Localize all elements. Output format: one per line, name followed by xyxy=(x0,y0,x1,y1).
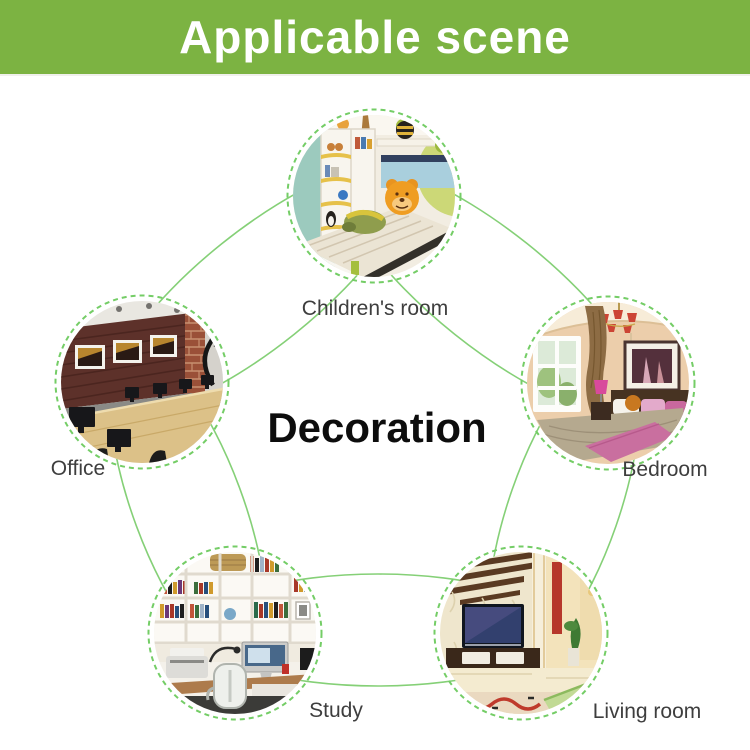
turtle-plush xyxy=(342,210,386,234)
tv xyxy=(462,604,524,648)
node-study xyxy=(147,545,323,721)
bedroom-photo-illustration xyxy=(527,302,689,464)
study-photo-illustration xyxy=(154,552,316,714)
printer xyxy=(166,648,208,678)
red-cup xyxy=(282,664,289,674)
label-living-room: Living room xyxy=(593,700,702,724)
center-title: Decoration xyxy=(267,404,486,452)
tv-console xyxy=(446,648,540,668)
bear-plush xyxy=(385,179,419,215)
label-bedroom: Bedroom xyxy=(622,458,707,482)
label-study: Study xyxy=(309,699,363,723)
label-office: Office xyxy=(51,457,105,481)
childrens-room-photo-illustration xyxy=(293,115,455,277)
node-living-room xyxy=(433,545,609,721)
basket xyxy=(210,554,246,571)
living-room-photo-illustration xyxy=(440,552,602,714)
bedroom-photo xyxy=(527,302,689,464)
office-photo-illustration xyxy=(61,301,223,463)
globe xyxy=(224,608,236,620)
bee-plush xyxy=(396,121,414,139)
node-office xyxy=(54,294,230,470)
node-bedroom xyxy=(520,295,696,471)
living-room-photo xyxy=(440,552,602,714)
node-childrens-room xyxy=(286,108,462,284)
study-photo xyxy=(154,552,316,714)
office-photo xyxy=(61,301,223,463)
applicable-scene-page: Applicable scene xyxy=(0,0,750,750)
childrens-room-photo xyxy=(293,115,455,277)
label-childrens-room: Children's room xyxy=(302,297,448,321)
window xyxy=(533,336,581,412)
wall-picture xyxy=(625,342,679,390)
